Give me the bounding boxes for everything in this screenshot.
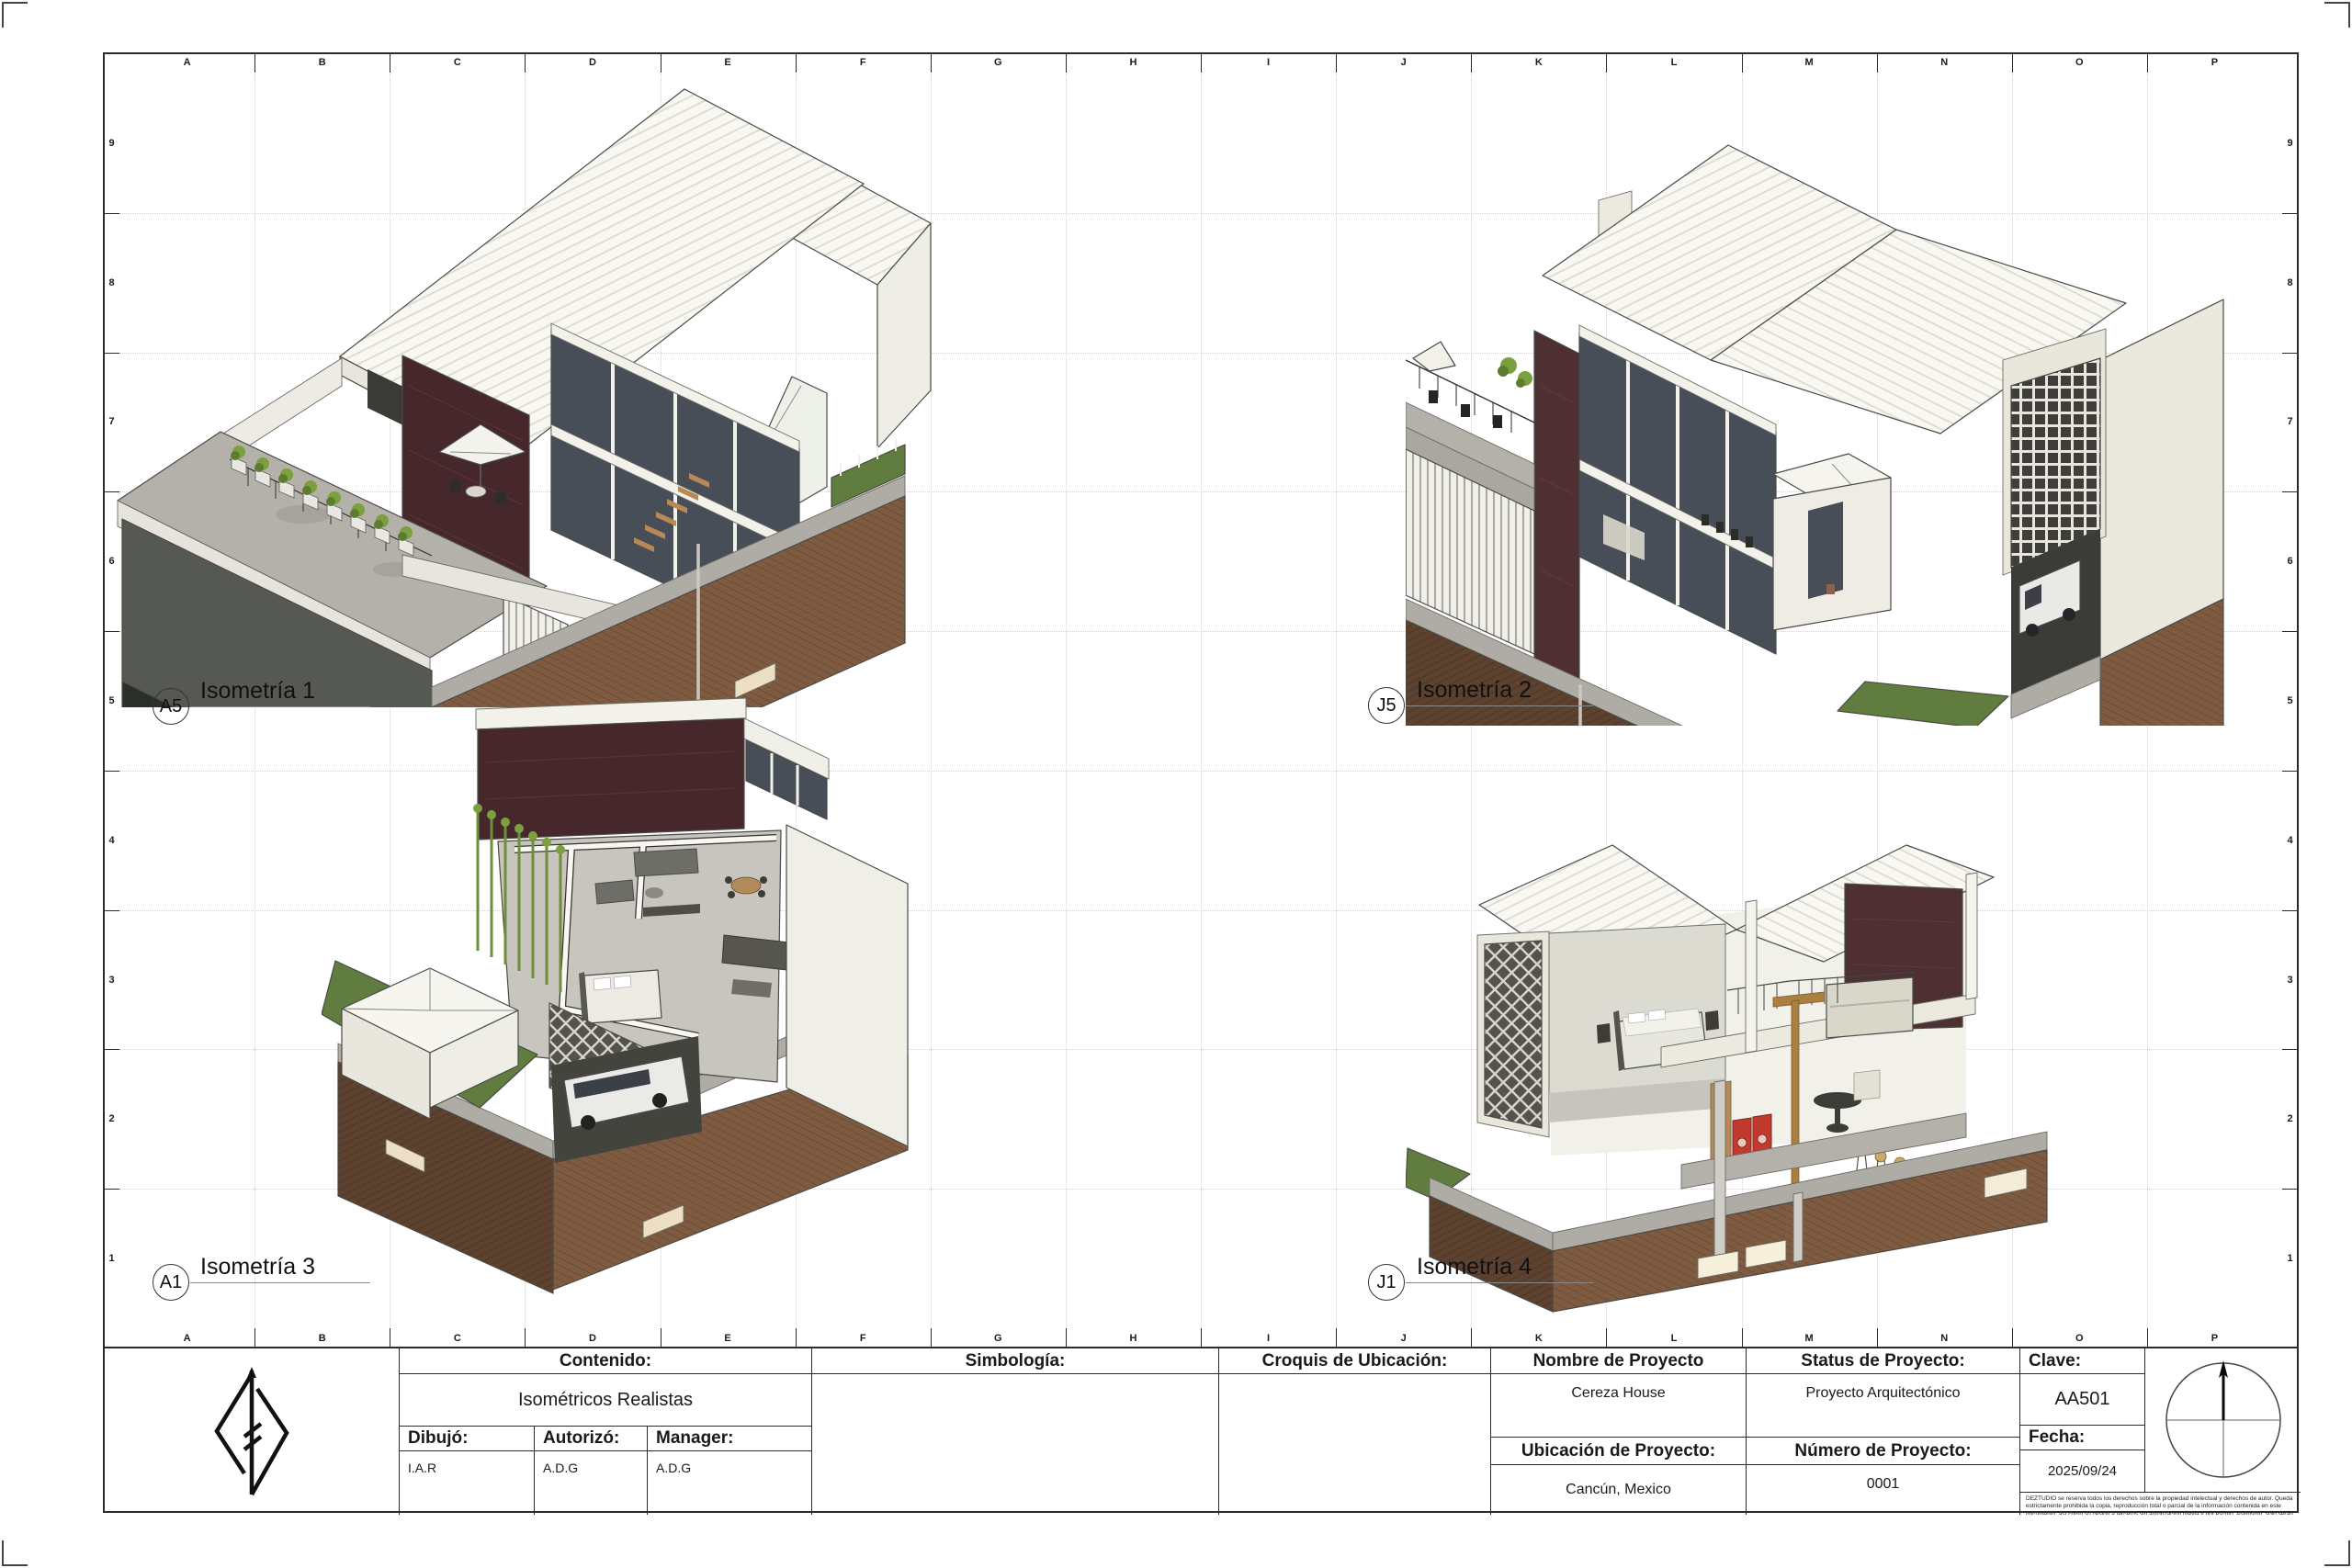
view-title-underline [1406,705,1593,706]
view-title: Isometría 4 [1417,1254,1532,1280]
grid-letter-bottom: O [2012,1329,2147,1347]
logo-arrow-tip [247,1367,256,1378]
view-title: Isometría 3 [200,1254,315,1280]
grid-tick-bottom [1066,1328,1067,1347]
detail-ref-bubble: J1 [1368,1264,1405,1301]
grid-letter-bottom: G [931,1329,1066,1347]
grid-tick-bottom [1471,1328,1472,1347]
grid-tick-top [1201,53,1202,73]
view-title-underline [190,706,370,707]
view3-interior-plan [498,830,788,1082]
grid-letter-bottom: J [1336,1329,1471,1347]
view2-entry-canopy [1773,454,1891,630]
grid-letter-top: M [1742,52,1877,72]
grid-letter-top: H [1066,52,1201,72]
grid-tick-top [1606,53,1607,73]
detail-ref-bubble: A1 [153,1264,189,1301]
grid-tick-top [1066,53,1067,73]
grid-number-left: 2 [104,1049,119,1189]
grid-number-right: 2 [2282,1049,2298,1189]
grid-tick-right [2282,491,2298,492]
view3-bed [579,970,661,1025]
grid-number-right: 4 [2282,771,2298,910]
grid-tick-right [2282,213,2298,214]
grid-number-right: 3 [2282,910,2298,1050]
grid-letter-bottom: D [525,1329,660,1347]
view-title-underline [190,1282,370,1283]
grid-tick-bottom [2147,1328,2148,1347]
grid-tick-bottom [254,1328,255,1347]
grid-number-right: 5 [2282,631,2298,771]
grid-tick-bottom [1877,1328,1878,1347]
north-arrow-compass [2159,1356,2288,1484]
grid-tick-bottom [525,1328,526,1347]
fecha-label: Fecha: [2019,1426,2144,1450]
logo-cell [105,1348,400,1515]
grid-letter-top: N [1877,52,2012,72]
grid-number-left: 4 [104,771,119,910]
ubicacion-value: Cancún, Mexico [1490,1465,1746,1515]
fecha-value: 2025/09/24 [2019,1450,2144,1492]
autorizo-label: Autorizó: [535,1427,648,1451]
grid-tick-left [104,771,119,772]
grid-letter-bottom: N [1877,1329,2012,1347]
contenido-value: Isométricos Realistas [400,1374,811,1427]
numero-label: Número de Proyecto: [1746,1438,2019,1465]
grid-tick-bottom [1336,1328,1337,1347]
grid-letter-bottom: M [1742,1329,1877,1347]
detail-ref-bubble: J5 [1368,687,1405,724]
nombre-value: Cereza House [1490,1374,1746,1438]
grid-tick-left [104,1049,119,1050]
view4-bedroom [1477,924,1725,1137]
clave-label: Clave: [2019,1348,2144,1374]
grid-letter-top: G [931,52,1066,72]
grid-letter-top: O [2012,52,2147,72]
grid-number-right: 9 [2282,73,2298,213]
grid-tick-right [2282,910,2298,911]
grid-tick-bottom [1201,1328,1202,1347]
detail-ref-text: A5 [160,696,182,717]
dibujo-label: Dibujó: [400,1427,535,1451]
status-value: Proyecto Arquitectónico [1746,1374,2019,1438]
grid-tick-bottom [661,1328,661,1347]
grid-letter-bottom: B [254,1329,390,1347]
grid-tick-bottom [1606,1328,1607,1347]
dibujo-value: I.A.R [400,1451,535,1515]
grid-letter-bottom: P [2147,1329,2282,1347]
grid-number-right: 1 [2282,1189,2298,1328]
grid-dotted-line [1336,73,1337,1328]
grid-tick-bottom [2012,1328,2013,1347]
grid-tick-bottom [931,1328,932,1347]
view2-roof-terrace [1406,342,1534,654]
grid-letter-top: P [2147,52,2282,72]
grid-letter-bottom: F [796,1329,931,1347]
grid-tick-right [2282,631,2298,632]
status-label: Status de Proyecto: [1746,1348,2019,1374]
north-compass-cell [2144,1348,2301,1492]
ubicacion-label: Ubicación de Proyecto: [1490,1438,1746,1465]
grid-tick-bottom [796,1328,797,1347]
detail-ref-text: J5 [1376,695,1396,716]
isometric-view-2-drawing [1406,92,2269,726]
grid-number-left: 1 [104,1189,119,1328]
view-title: Isometría 2 [1417,677,1532,704]
grid-tick-bottom [1742,1328,1743,1347]
north-needle [2219,1360,2228,1420]
detail-ref-text: J1 [1376,1272,1396,1293]
grid-tick-right [2282,771,2298,772]
grid-tick-top [1877,53,1878,73]
contenido-label: Contenido: [400,1348,811,1374]
grid-tick-right [2282,1189,2298,1190]
view3-top-walls [476,698,829,840]
grid-number-right: 8 [2282,213,2298,353]
grid-tick-top [1471,53,1472,73]
clave-value: AA501 [2019,1374,2144,1426]
croquis-body [1218,1374,1490,1515]
disclaimer-cell: DEZTUDIO se reserva todos los derechos s… [2019,1492,2301,1515]
grid-number-left: 3 [104,910,119,1050]
grid-dotted-line [1201,73,1202,1328]
grid-tick-top [1742,53,1743,73]
grid-tick-right [2282,353,2298,354]
view2-atrium [1579,325,1776,654]
grid-tick-top [1336,53,1337,73]
grid-letter-bottom: L [1606,1329,1741,1347]
drawing-sheet: AABBCCDDEEFFGGHHIIJJKKLLMMNNOOPP99887766… [0,0,2352,1568]
grid-letter-bottom: E [661,1329,796,1347]
manager-label: Manager: [648,1427,811,1451]
nombre-label: Nombre de Proyecto [1490,1348,1746,1374]
disclaimer-text: DEZTUDIO se reserva todos los derechos s… [2020,1493,2301,1515]
numero-value: 0001 [1746,1465,2019,1515]
detail-ref-text: A1 [160,1272,182,1293]
croquis-label: Croquis de Ubicación: [1218,1348,1490,1374]
deztudio-logo [209,1365,294,1499]
isometric-view-1-drawing [110,64,937,707]
grid-letter-bottom: K [1471,1329,1606,1347]
grid-tick-left [104,1189,119,1190]
grid-tick-right [2282,1049,2298,1050]
grid-letter-top: J [1336,52,1471,72]
title-block: Contenido: Isométricos Realistas Dibujó:… [103,1347,2299,1513]
isometric-view-3-drawing [322,698,928,1304]
autorizo-value: A.D.G [535,1451,648,1515]
grid-letter-bottom: I [1201,1329,1336,1347]
isometric-view-4-drawing [1406,790,2150,1314]
grid-letter-top: I [1201,52,1336,72]
grid-number-right: 7 [2282,353,2298,492]
grid-tick-top [2012,53,2013,73]
grid-letter-bottom: C [390,1329,525,1347]
manager-value: A.D.G [648,1451,811,1515]
simbologia-label: Simbología: [811,1348,1218,1374]
detail-ref-bubble: A5 [153,688,189,725]
view2-maroon-column [1534,331,1579,684]
view-title: Isometría 1 [200,678,315,705]
simbologia-body [811,1374,1218,1515]
grid-letter-top: L [1606,52,1741,72]
grid-tick-top [2147,53,2148,73]
grid-number-right: 6 [2282,491,2298,631]
grid-letter-top: K [1471,52,1606,72]
grid-letter-bottom: H [1066,1329,1201,1347]
grid-letter-bottom: A [119,1329,254,1347]
grid-tick-bottom [390,1328,390,1347]
grid-tick-left [104,910,119,911]
view-title-underline [1406,1282,1593,1283]
grid-dotted-line [1066,73,1067,1328]
